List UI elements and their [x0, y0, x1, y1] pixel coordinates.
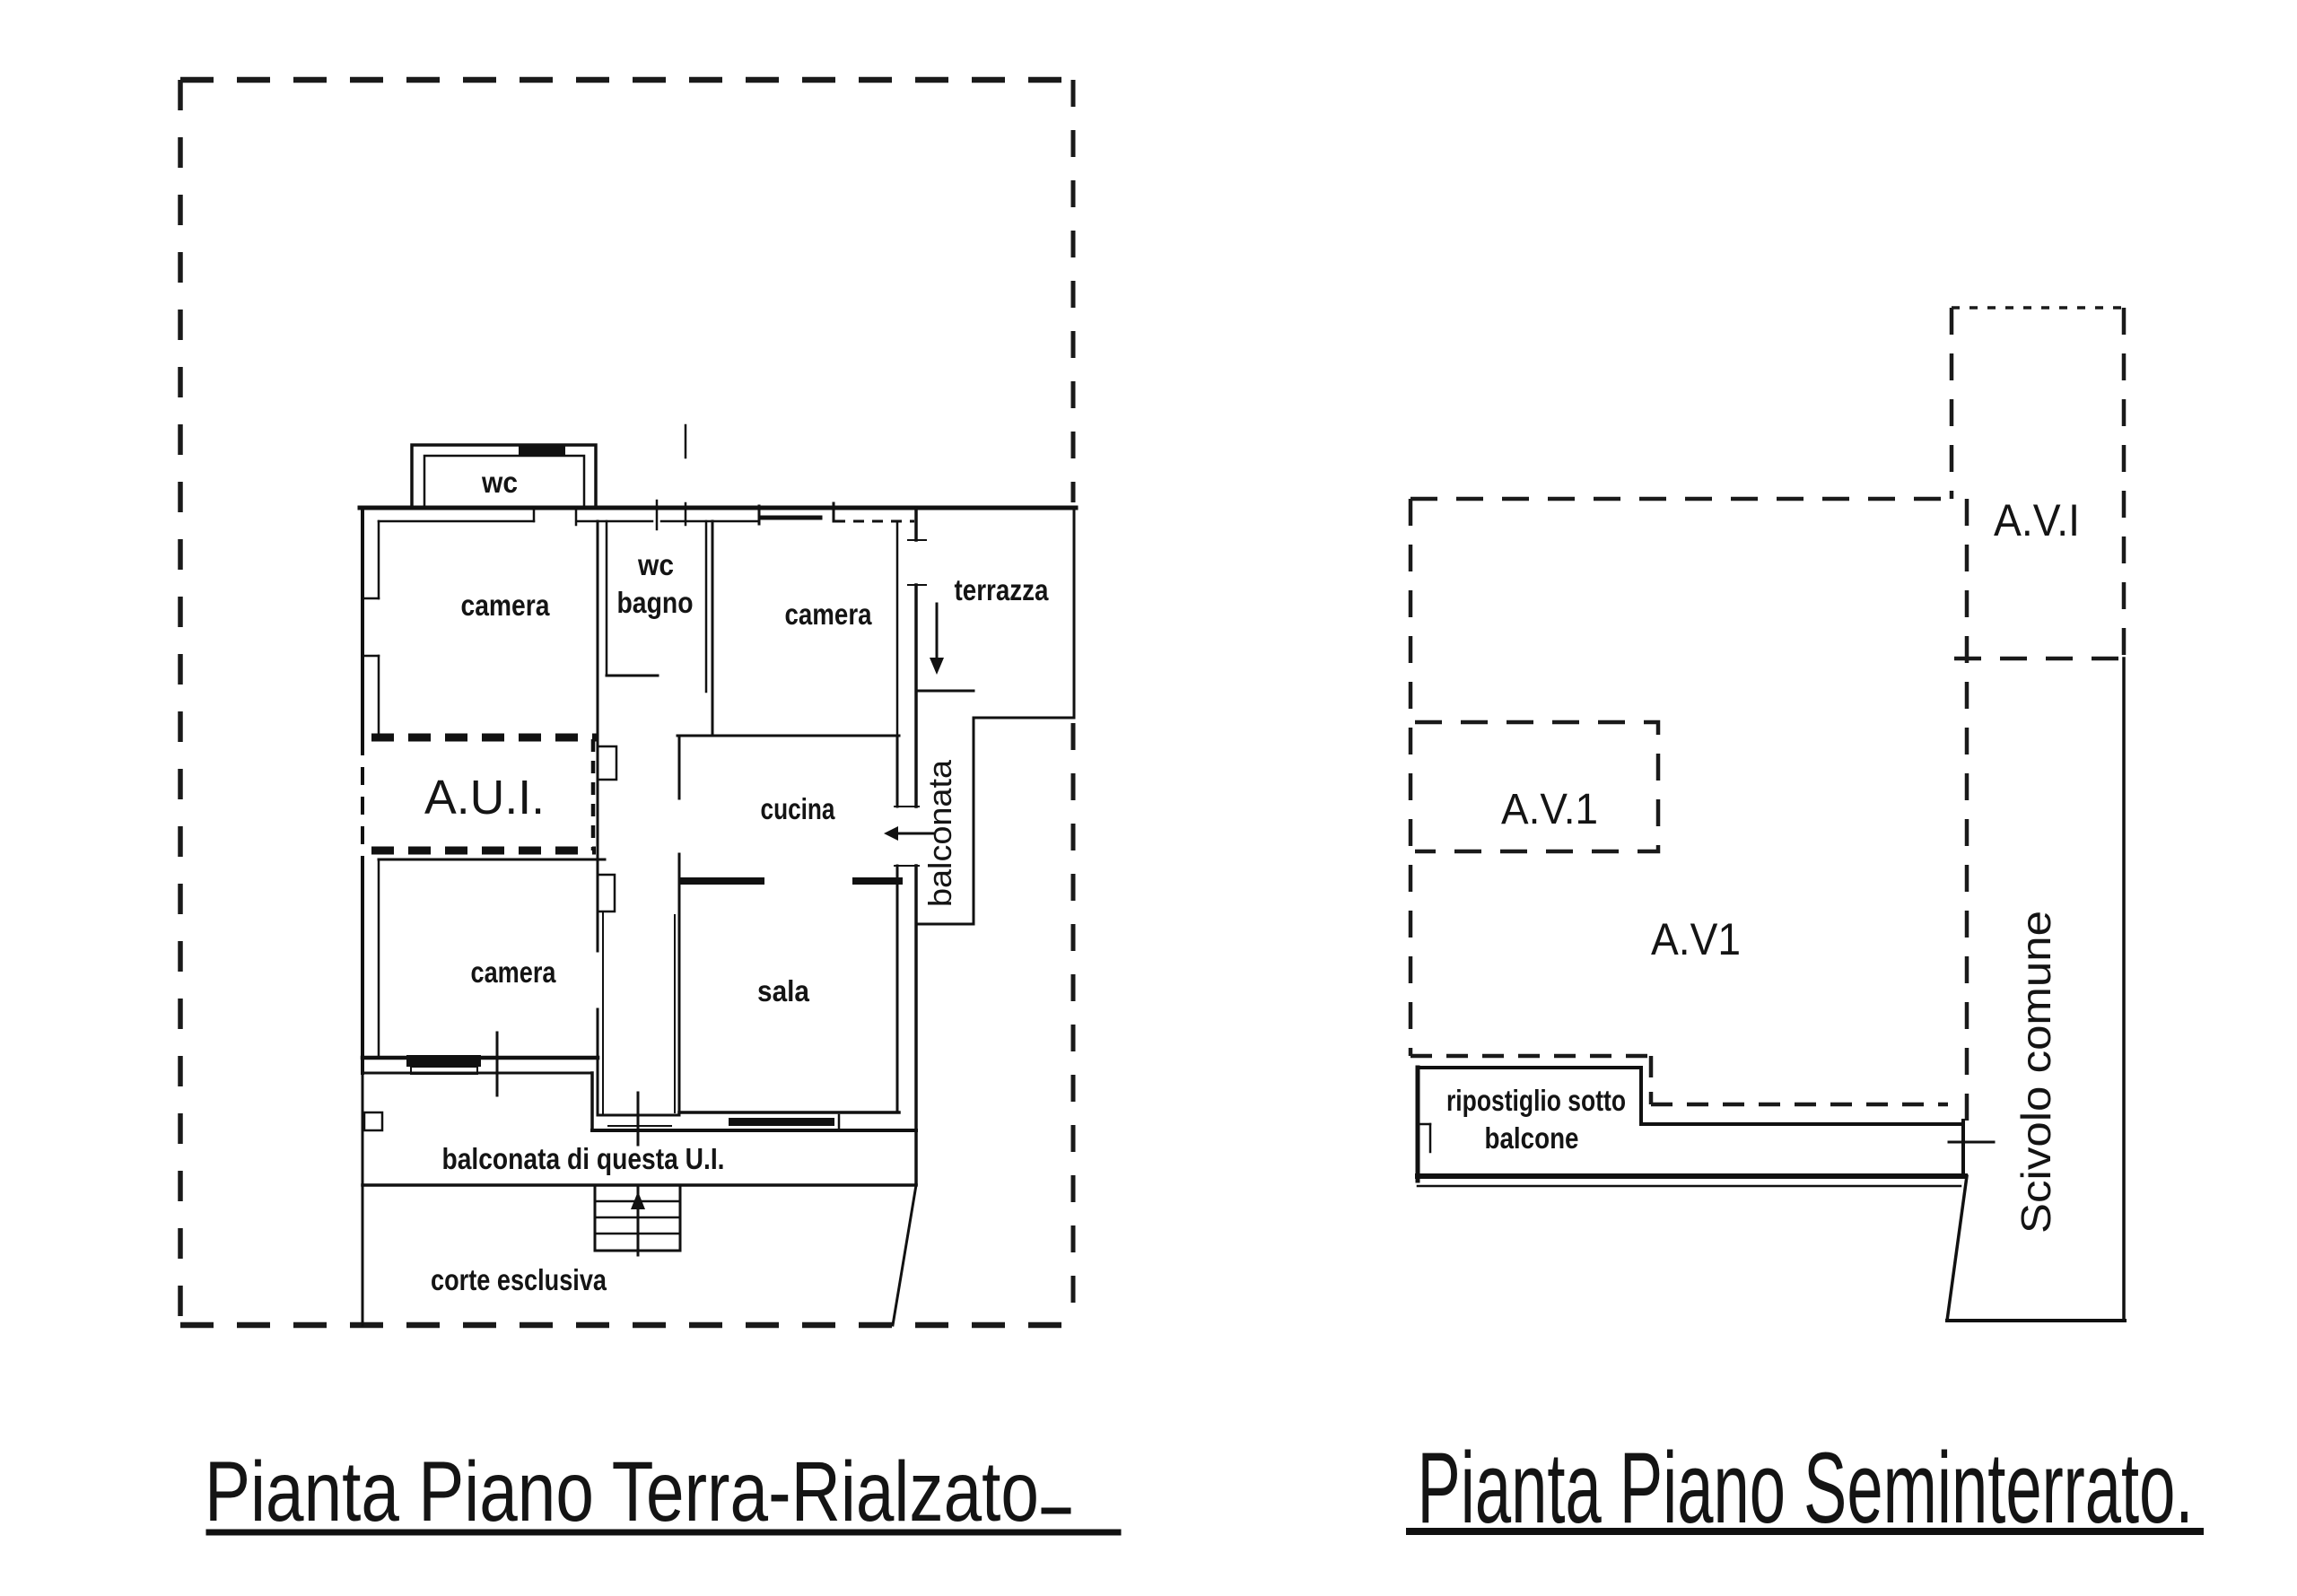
svg-text:wc: wc [637, 548, 674, 581]
svg-text:camera: camera [785, 597, 873, 631]
svg-text:A.V.1: A.V.1 [1501, 786, 1598, 833]
svg-text:sala: sala [757, 974, 810, 1007]
svg-text:bagno: bagno [617, 586, 694, 619]
svg-text:balcone: balcone [1485, 1121, 1579, 1155]
svg-text:camera: camera [461, 589, 551, 622]
svg-text:A.U.I.: A.U.I. [424, 771, 545, 824]
svg-text:Pianta Piano Seminterrato.: Pianta Piano Seminterrato. [1418, 1432, 2194, 1544]
svg-text:A.V1: A.V1 [1651, 914, 1741, 964]
svg-text:balconata di questa U.I.: balconata di questa U.I. [442, 1142, 725, 1175]
svg-text:Pianta Piano Terra-Rialzato: Pianta Piano Terra-Rialzato [205, 1444, 1039, 1539]
svg-text:Scivolo comune: Scivolo comune [2013, 911, 2059, 1234]
svg-text:corte esclusiva: corte esclusiva [431, 1263, 607, 1296]
svg-text:camera: camera [471, 955, 557, 989]
svg-text:balconata: balconata [921, 759, 958, 907]
svg-text:wc: wc [481, 466, 518, 499]
svg-text:cucina: cucina [761, 792, 836, 825]
svg-text:ripostiglio sotto: ripostiglio sotto [1446, 1084, 1626, 1117]
svg-text:terrazza: terrazza [955, 573, 1050, 606]
svg-text:A.V.I: A.V.I [1994, 495, 2080, 545]
